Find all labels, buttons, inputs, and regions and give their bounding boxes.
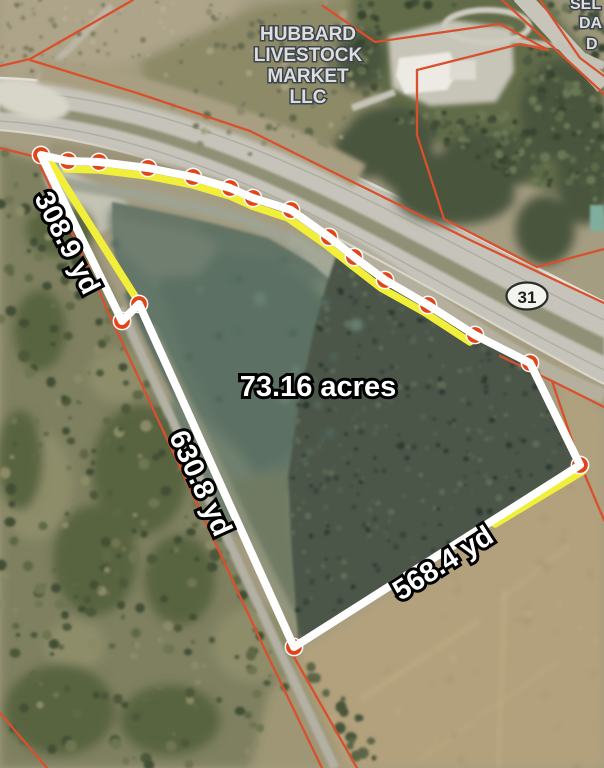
svg-text:73.16 acres: 73.16 acres [240,371,396,403]
svg-text:MARKET: MARKET [267,66,349,87]
svg-text:DA: DA [579,15,603,32]
svg-text:LIVESTOCK: LIVESTOCK [254,45,363,66]
svg-text:HUBBARD: HUBBARD [260,24,356,45]
svg-text:SEL: SEL [570,0,601,13]
svg-text:31: 31 [518,288,537,307]
svg-text:D: D [586,36,598,53]
svg-text:LLC: LLC [290,87,327,108]
